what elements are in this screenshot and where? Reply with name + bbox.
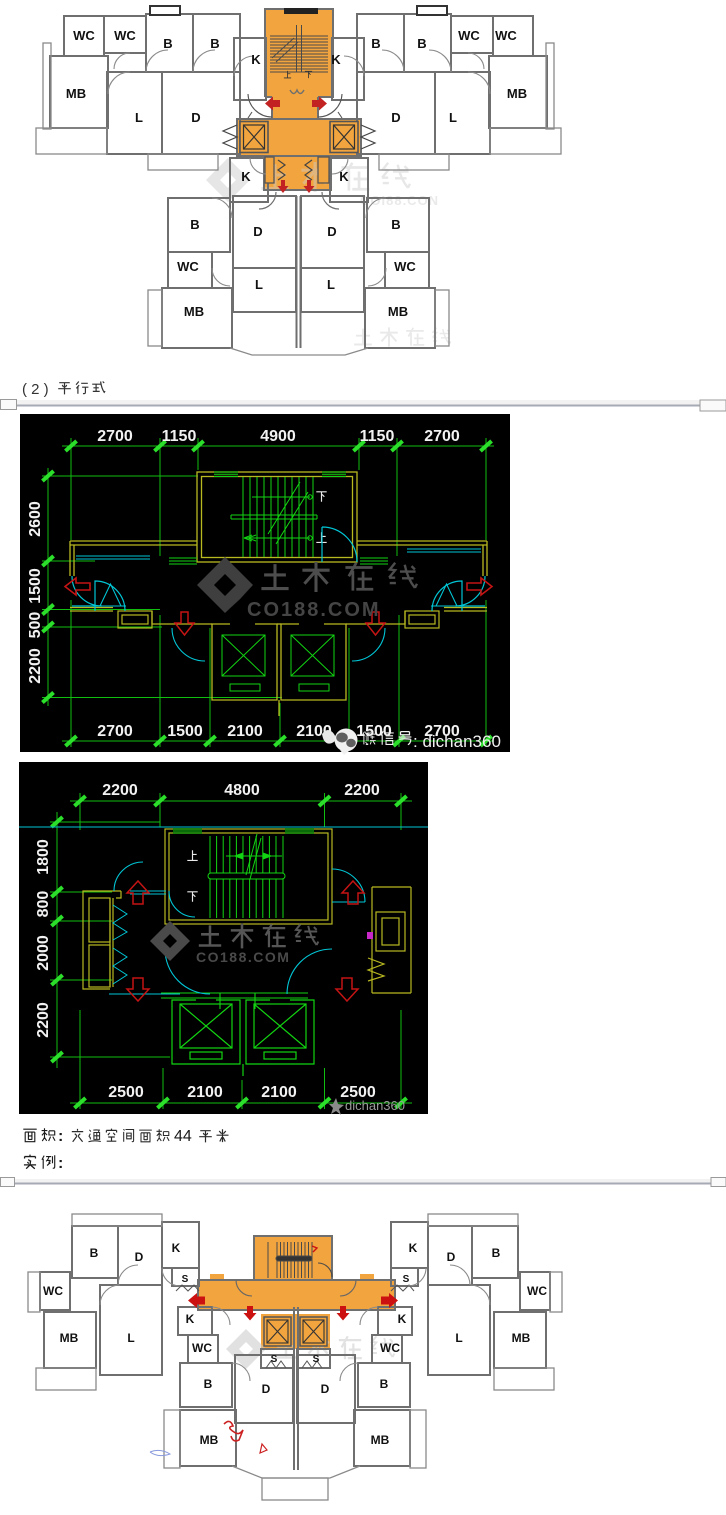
svg-text:K: K xyxy=(331,52,341,67)
svg-text:2200: 2200 xyxy=(27,648,44,684)
svg-text:2200: 2200 xyxy=(344,782,380,799)
svg-text:B: B xyxy=(380,1377,389,1391)
svg-text:D: D xyxy=(253,224,262,239)
svg-text:MB: MB xyxy=(184,304,204,319)
svg-text:MB: MB xyxy=(512,1331,531,1345)
svg-text:B: B xyxy=(204,1377,213,1391)
svg-text:1800: 1800 xyxy=(35,839,52,875)
svg-text:K: K xyxy=(186,1312,195,1326)
svg-text:S: S xyxy=(271,1354,278,1365)
svg-text:CO188.COM: CO188.COM xyxy=(247,599,381,621)
svg-text:S: S xyxy=(182,1274,189,1285)
svg-text:COI88.CON: COI88.CON xyxy=(360,193,439,208)
svg-text:( 2 ): ( 2 ) xyxy=(22,381,49,398)
svg-text:B: B xyxy=(90,1246,99,1260)
svg-text:2700: 2700 xyxy=(97,428,133,445)
svg-text:2600: 2600 xyxy=(27,501,44,537)
svg-text:WC: WC xyxy=(177,259,199,274)
svg-text:CO188.COM: CO188.COM xyxy=(196,949,290,965)
svg-text:2100: 2100 xyxy=(261,1084,297,1101)
svg-text:D: D xyxy=(321,1382,330,1396)
svg-text:MB: MB xyxy=(388,304,408,319)
svg-text:B: B xyxy=(417,36,426,51)
svg-text:2500: 2500 xyxy=(108,1084,144,1101)
svg-text:2700: 2700 xyxy=(424,428,460,445)
svg-text:B: B xyxy=(163,36,172,51)
svg-text:B: B xyxy=(492,1246,501,1260)
svg-text:L: L xyxy=(135,110,143,125)
svg-text:dichan360: dichan360 xyxy=(345,1098,405,1113)
svg-text:B: B xyxy=(391,217,400,232)
svg-text:MB: MB xyxy=(60,1331,79,1345)
svg-text:500: 500 xyxy=(27,612,44,639)
svg-text:S: S xyxy=(313,1354,320,1365)
svg-text:2700: 2700 xyxy=(97,723,133,740)
svg-text:2200: 2200 xyxy=(102,782,138,799)
svg-text:D: D xyxy=(447,1250,456,1264)
svg-text:WC: WC xyxy=(495,28,517,43)
svg-text:MB: MB xyxy=(371,1433,390,1447)
svg-text:L: L xyxy=(449,110,457,125)
svg-text:1150: 1150 xyxy=(162,428,197,445)
svg-text:2100: 2100 xyxy=(187,1084,223,1101)
svg-text:D: D xyxy=(391,110,400,125)
svg-text:WC: WC xyxy=(394,259,416,274)
svg-text:: dichan360: : dichan360 xyxy=(413,732,501,751)
svg-text:MB: MB xyxy=(507,86,527,101)
svg-text:K: K xyxy=(241,169,251,184)
svg-text:S: S xyxy=(403,1274,410,1285)
svg-text:4900: 4900 xyxy=(260,428,296,445)
svg-text:K: K xyxy=(409,1241,418,1255)
svg-text:WC: WC xyxy=(114,28,136,43)
svg-text:WC: WC xyxy=(527,1284,547,1298)
svg-text:L: L xyxy=(327,277,335,292)
svg-text:WC: WC xyxy=(43,1284,63,1298)
svg-text:K: K xyxy=(251,52,261,67)
svg-text:2100: 2100 xyxy=(227,723,263,740)
svg-text:B: B xyxy=(210,36,219,51)
svg-text:K: K xyxy=(339,169,349,184)
svg-text:4800: 4800 xyxy=(224,782,260,799)
svg-text:2000: 2000 xyxy=(35,935,52,971)
svg-text:D: D xyxy=(262,1382,271,1396)
svg-text:WC: WC xyxy=(192,1341,212,1355)
svg-text:B: B xyxy=(190,217,199,232)
svg-text:1150: 1150 xyxy=(360,428,395,445)
svg-text:WC: WC xyxy=(380,1341,400,1355)
svg-text:D: D xyxy=(191,110,200,125)
svg-text:1500: 1500 xyxy=(27,568,44,604)
svg-text:WC: WC xyxy=(73,28,95,43)
svg-text:800: 800 xyxy=(35,891,52,918)
svg-text::: : xyxy=(58,1155,63,1172)
svg-text:K: K xyxy=(398,1312,407,1326)
svg-text:L: L xyxy=(455,1331,462,1345)
svg-text:44: 44 xyxy=(174,1128,192,1145)
svg-text:2200: 2200 xyxy=(35,1002,52,1038)
svg-text:K: K xyxy=(172,1241,181,1255)
svg-text:WC: WC xyxy=(458,28,480,43)
svg-text::: : xyxy=(58,1128,63,1145)
svg-text:L: L xyxy=(127,1331,134,1345)
svg-text:MB: MB xyxy=(200,1433,219,1447)
svg-text:D: D xyxy=(327,224,336,239)
svg-text:L: L xyxy=(255,277,263,292)
svg-text:1500: 1500 xyxy=(167,723,203,740)
svg-text:B: B xyxy=(371,36,380,51)
svg-text:MB: MB xyxy=(66,86,86,101)
svg-text:D: D xyxy=(135,1250,144,1264)
